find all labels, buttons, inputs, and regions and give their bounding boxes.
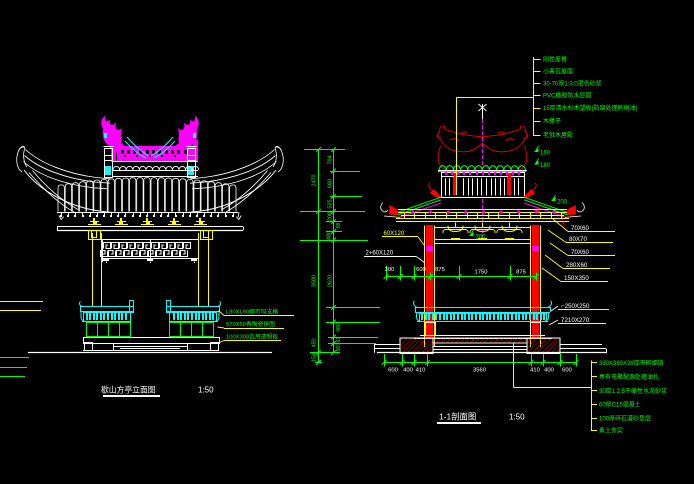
svg-text:専有电聚配源处理油扎: 専有电聚配源处理油扎: [599, 373, 659, 381]
svg-text:老戗木屋殿: 老戗木屋殿: [543, 131, 573, 139]
svg-text:760: 760: [336, 337, 342, 346]
svg-text:70X60: 70X60: [571, 249, 589, 256]
svg-text:15厚清水杉木望板(防腐处理刷桐油): 15厚清水杉木望板(防腐处理刷桐油): [543, 104, 638, 112]
svg-text:歇山方亭立面图: 歇山方亭立面图: [101, 385, 156, 395]
svg-text:480: 480: [336, 323, 342, 332]
svg-text:木椽子: 木椽子: [543, 117, 561, 125]
svg-text:410: 410: [530, 368, 540, 374]
svg-text:1750: 1750: [475, 270, 488, 276]
svg-text:600: 600: [416, 267, 426, 273]
svg-text:L80XL80钢市叫支格: L80XL80钢市叫支格: [226, 308, 278, 316]
svg-text:3560: 3560: [473, 368, 486, 374]
svg-text:660: 660: [328, 179, 334, 188]
svg-text:3500: 3500: [312, 275, 318, 287]
svg-text:160: 160: [540, 151, 551, 157]
svg-text:400: 400: [327, 231, 333, 240]
svg-text:410: 410: [416, 368, 426, 374]
svg-text:400: 400: [403, 368, 413, 374]
svg-text:素土夯实: 素土夯实: [599, 426, 623, 434]
svg-text:68: 68: [336, 223, 342, 229]
svg-text:875: 875: [435, 267, 445, 273]
svg-text:150X350: 150X350: [564, 275, 589, 282]
svg-text:200: 200: [328, 212, 334, 221]
svg-text:150: 150: [336, 346, 342, 355]
svg-text:200: 200: [557, 200, 568, 206]
svg-text:1-1剖面图: 1-1剖面图: [439, 412, 476, 422]
svg-text:180: 180: [540, 163, 551, 169]
svg-text:154: 154: [312, 353, 318, 362]
svg-text:30-70厚1:3.0混合砂浆: 30-70厚1:3.0混合砂浆: [543, 80, 602, 88]
svg-text:2620: 2620: [328, 275, 334, 287]
svg-text:70X60: 70X60: [571, 225, 589, 232]
svg-text:784: 784: [328, 155, 334, 164]
svg-text:1:50: 1:50: [509, 413, 525, 422]
svg-text:2470: 2470: [312, 174, 318, 186]
svg-text:525: 525: [328, 199, 334, 208]
svg-text:450: 450: [312, 338, 318, 347]
svg-text:100X300瓦用透明板: 100X300瓦用透明板: [226, 333, 278, 341]
svg-text:1:50: 1:50: [198, 386, 214, 395]
svg-text:小青瓦屋面: 小青瓦屋面: [543, 68, 573, 76]
svg-text:875: 875: [516, 270, 526, 276]
svg-text:⌐250X250: ⌐250X250: [561, 303, 590, 310]
svg-text:380X380X38厚市砌细链: 380X380X38厚市砌细链: [599, 359, 664, 367]
svg-text:60X120: 60X120: [384, 231, 405, 237]
svg-text:400: 400: [544, 368, 554, 374]
svg-text:200: 200: [476, 235, 487, 241]
svg-text:7210X270: 7210X270: [561, 317, 590, 324]
svg-text:300: 300: [385, 267, 395, 273]
svg-text:2+60X120: 2+60X120: [366, 250, 394, 256]
svg-text:100厚碎石灌砂垫层: 100厚碎石灌砂垫层: [599, 414, 651, 422]
svg-text:600: 600: [562, 368, 572, 374]
svg-text:80X70: 80X70: [569, 236, 587, 243]
svg-text:60厚C15混凝土: 60厚C15混凝土: [599, 400, 641, 408]
svg-text:刚性屋脊: 刚性屋脊: [543, 56, 567, 64]
svg-text:570X50青陶瓷拼图: 570X50青陶瓷拼图: [226, 320, 275, 328]
svg-text:PVC橡胶防水层面: PVC橡胶防水层面: [543, 92, 591, 100]
svg-text:280X60: 280X60: [566, 262, 588, 269]
svg-text:30厚1:2.5干硬性水泥砂浆: 30厚1:2.5干硬性水泥砂浆: [599, 387, 667, 395]
svg-text:600: 600: [388, 368, 398, 374]
